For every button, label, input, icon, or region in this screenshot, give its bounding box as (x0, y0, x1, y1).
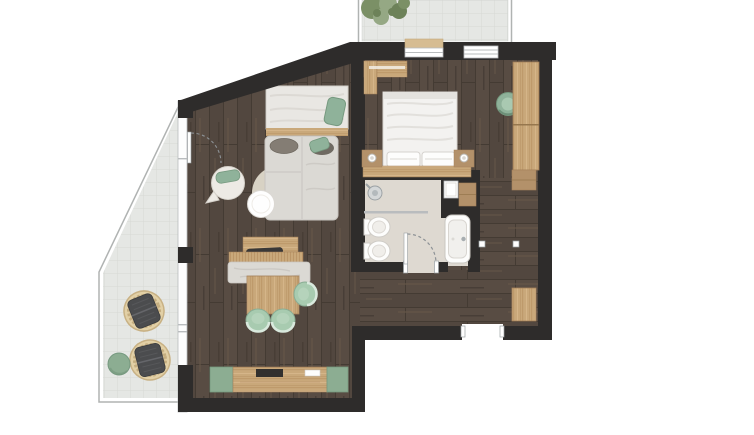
toilet (364, 241, 390, 261)
dining-chair-bottom-right (271, 309, 295, 332)
lounge-sofa (265, 136, 338, 220)
wall-pier-top (178, 100, 193, 118)
tv (256, 369, 283, 377)
floor-plan-drawing (0, 0, 754, 435)
window-planter-sill (405, 39, 443, 49)
entrance-opening (462, 324, 503, 342)
hall-cabinet (512, 170, 536, 190)
wardrobe-divider (513, 124, 539, 126)
balcony (359, 0, 512, 44)
wall-bottom-living (183, 398, 365, 412)
bath-cabinet (459, 183, 476, 206)
bath-jamb-right (435, 261, 439, 273)
terrace-door-leaf (188, 132, 192, 163)
wall-right (538, 42, 552, 340)
wall-pier-mid (178, 247, 193, 263)
bathroom-door-leaf (404, 233, 408, 264)
dining-chair-right (294, 282, 317, 306)
wardrobe (513, 62, 539, 170)
side-pouf (108, 353, 130, 375)
media-sideboard (210, 367, 348, 392)
nightstand-right (454, 150, 474, 167)
headboard-shelf (363, 166, 471, 177)
balcony-sliding-door (464, 46, 498, 58)
sofa-pillow-gray (270, 139, 298, 154)
sideboard-tray (305, 370, 320, 376)
bathtub (445, 215, 470, 263)
daybed (266, 86, 348, 136)
entrance-jamb-right (500, 326, 504, 337)
entry-bench (512, 288, 536, 321)
sideboard-green-left (210, 367, 233, 392)
dining-chair-bottom-left (246, 309, 270, 332)
entrance-jamb-left (461, 326, 465, 337)
double-bed (383, 92, 457, 170)
hall-doorway-jamb-left (479, 241, 485, 247)
floor-plan-canvas (0, 0, 754, 435)
shower-glass (364, 211, 428, 214)
bidet (364, 217, 390, 237)
wall-pier-bottom (178, 365, 193, 412)
tub-faucet (461, 237, 465, 241)
round-table (248, 191, 275, 218)
wall-top (350, 42, 556, 60)
daybed-frame (266, 128, 348, 136)
dining-table (247, 276, 299, 314)
sideboard-green-right (327, 367, 348, 392)
nightstand-left (362, 150, 382, 167)
bath-door-opening (406, 261, 437, 273)
hall-doorway-jamb-right (513, 241, 519, 247)
wall-bottom-entry (363, 326, 552, 340)
